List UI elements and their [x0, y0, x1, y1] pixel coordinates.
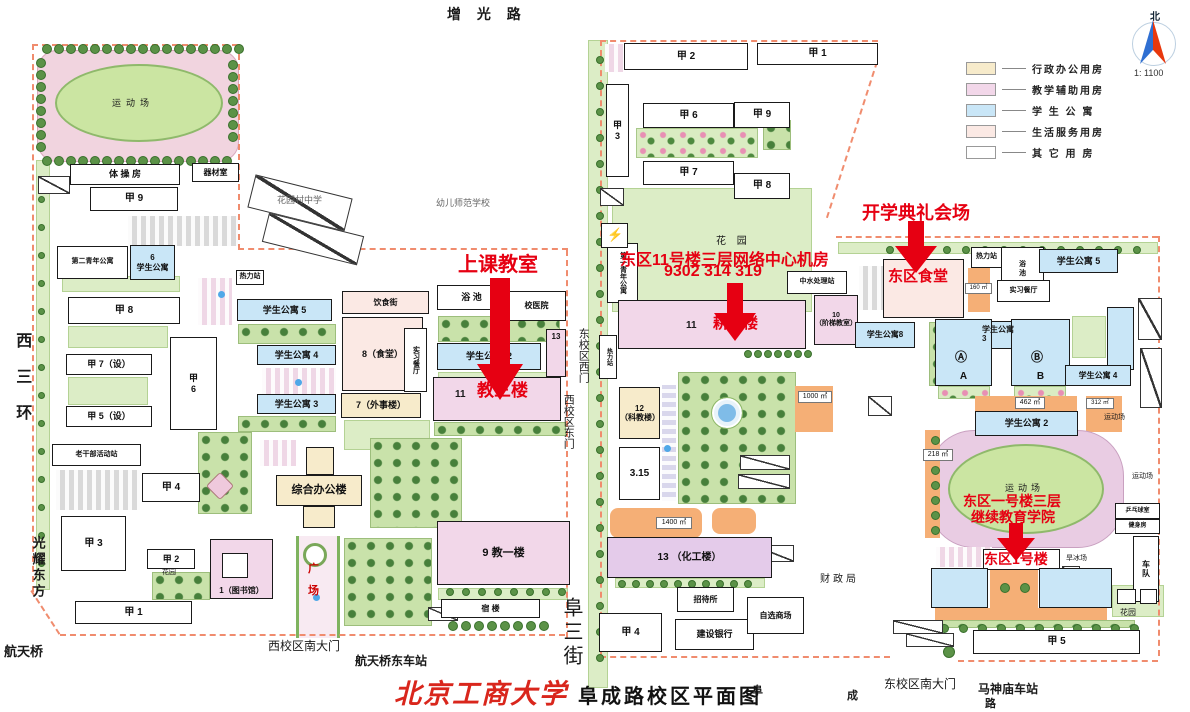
- building-label: 热力站: [976, 253, 997, 261]
- building-label: 甲 3: [84, 538, 102, 550]
- building-label: 13: [552, 332, 561, 341]
- building-building-3-15: 3.15: [619, 447, 660, 500]
- tree-icon: [618, 580, 626, 588]
- building-label: 1（图书馆）: [219, 586, 263, 595]
- campus-boundary: [600, 40, 878, 42]
- building-w-dorm-4: 学生公寓 4: [257, 345, 336, 365]
- tree-icon: [478, 588, 486, 596]
- e-court-small-1: 运动场: [1104, 414, 1125, 422]
- slash-box-icon: [906, 633, 954, 647]
- tree-icon: [38, 504, 45, 511]
- building-label: 10 （阶梯教室）: [815, 312, 857, 328]
- legend-line: [1002, 89, 1026, 90]
- tree-icon: [539, 621, 549, 631]
- arrow-head-icon: [895, 246, 937, 273]
- arrow-head-icon: [997, 538, 1035, 561]
- building-label: 实习餐厅: [411, 346, 419, 374]
- area-dots: [198, 432, 252, 514]
- legend-item: 生活服务用房: [966, 121, 1104, 142]
- building-label: 学生公寓 3: [275, 399, 319, 409]
- tree-icon: [1133, 246, 1141, 254]
- legend-swatch: [966, 146, 996, 159]
- building-label: 甲 2: [677, 51, 695, 63]
- building-label: 13 （化工楼）: [658, 552, 722, 564]
- building-w-dorm-5: 学生公寓 5: [237, 299, 332, 321]
- legend-line: [1002, 110, 1026, 111]
- building-label: 实习餐厅: [1010, 287, 1038, 295]
- building-w-jia-9: 甲 9: [90, 187, 178, 211]
- tree-icon: [38, 364, 45, 371]
- building-south-dorm-block: 宿 楼: [441, 599, 540, 618]
- annotation-network-center-line2: 9302 314 319: [664, 263, 762, 281]
- building-sci-edu-building-12: 12 （科教楼）: [619, 387, 660, 439]
- water-dot-icon: [664, 445, 671, 452]
- building-label: 甲 7（设）: [87, 359, 131, 369]
- kindergarten-school: 幼儿师范学校: [436, 198, 490, 209]
- tree-icon: [513, 621, 523, 631]
- tree-icon: [162, 44, 172, 54]
- tree-icon: [38, 224, 45, 231]
- area-dots: [238, 324, 336, 344]
- east-west-gate: 东校区西门: [576, 328, 589, 383]
- building-label: 学生公寓 5: [1057, 256, 1101, 266]
- campus-boundary: [32, 44, 34, 592]
- building-label: 甲 4: [162, 482, 180, 494]
- tree-icon: [198, 44, 208, 54]
- building-e-jia-8: 甲 8: [734, 173, 790, 199]
- tree-icon: [1020, 583, 1030, 593]
- building-label: 车 队: [1142, 560, 1150, 578]
- tree-icon: [446, 588, 454, 596]
- area-parkg: [859, 266, 883, 310]
- dorm-3a-badge: Ⓐ: [955, 350, 967, 364]
- building-label: 乒乓球室: [1125, 508, 1149, 515]
- building-w-practice-restaurant: 实习餐厅: [404, 328, 427, 392]
- legend-line: [1002, 68, 1026, 69]
- building-e-practice-restaurant: 实习餐厅: [997, 280, 1050, 302]
- slash-box-icon: [740, 455, 790, 470]
- tree-icon: [596, 290, 604, 298]
- tree-icon: [804, 350, 812, 358]
- building-label: 学生公寓 4: [275, 350, 319, 360]
- building-label: 器材室: [204, 168, 228, 177]
- building-admin-office-wing-n: [306, 447, 334, 475]
- tree-icon: [38, 476, 45, 483]
- tree-icon: [36, 82, 46, 92]
- building-label: 1400 ㎡: [662, 519, 687, 527]
- w-sports-field: 运动场: [112, 98, 154, 109]
- area-dots: [344, 538, 432, 626]
- tree-icon: [42, 44, 52, 54]
- tree-icon: [931, 496, 940, 505]
- tree-icon: [36, 142, 46, 152]
- building-label: 综合办公楼: [292, 484, 347, 497]
- building-label: 8（食堂）: [362, 349, 403, 359]
- legend-label: 其 它 用 房: [1032, 145, 1094, 160]
- tree-icon: [596, 654, 604, 662]
- legend-item: 教学辅助用房: [966, 79, 1104, 100]
- building-label: 招待所: [694, 595, 718, 604]
- teaching-3-number: 11: [455, 389, 466, 401]
- legend-line: [1002, 152, 1026, 153]
- tree-icon: [596, 212, 604, 220]
- tree-icon: [54, 44, 64, 54]
- map-title: 北京工商大学 阜成路校区平面图: [394, 672, 762, 711]
- building-e-jia-4: 甲 4: [599, 613, 662, 652]
- tree-icon: [228, 84, 238, 94]
- tree-icon: [596, 316, 604, 324]
- building-e-jia-3: 甲 3: [606, 84, 629, 177]
- campus-boundary: [60, 634, 565, 636]
- tree-icon: [42, 156, 52, 166]
- building-w-jia-8: 甲 8: [68, 297, 180, 324]
- tree-icon: [1000, 583, 1010, 593]
- building-label: 12 （科教楼）: [620, 404, 659, 422]
- tree-icon: [66, 44, 76, 54]
- arrow-to-east-building-1: [997, 523, 1035, 561]
- tree-icon: [744, 580, 752, 588]
- tree-icon: [943, 646, 955, 658]
- tree-icon: [36, 118, 46, 128]
- building-e-jia-1: 甲 1: [757, 43, 878, 65]
- legend-swatch: [966, 62, 996, 75]
- building-w-building-13: 13: [546, 329, 566, 377]
- tree-icon: [36, 94, 46, 104]
- tree-icon: [794, 350, 802, 358]
- tree-icon: [764, 350, 772, 358]
- tree-icon: [228, 108, 238, 118]
- tree-icon: [228, 132, 238, 142]
- arrow-shaft: [727, 283, 743, 313]
- tree-icon: [461, 621, 471, 631]
- tree-icon: [646, 580, 654, 588]
- area-parkp: [198, 278, 232, 325]
- campus-title: 阜成路校区平面图: [578, 680, 762, 709]
- road-fuchenglu-2: 成: [847, 690, 858, 703]
- road-hangtianqiao: 航天桥: [4, 644, 43, 660]
- annotation-continuing-edu-line2: 继续教育学院: [971, 507, 1055, 527]
- building-garden-box-2: [1140, 589, 1157, 604]
- building-e-dorm-4: 学生公寓 4: [1065, 365, 1131, 386]
- area-orange: [990, 570, 1038, 608]
- building-gengyun-building: [618, 300, 806, 349]
- w-garden-small: 花园: [162, 569, 176, 577]
- tree-icon: [174, 44, 184, 54]
- building-east-building-1-east-wing: [1039, 568, 1112, 608]
- building-garden-box-1: [1117, 589, 1136, 604]
- tree-icon: [500, 621, 510, 631]
- building-e-jia-5: 甲 5: [973, 630, 1140, 654]
- tree-icon: [38, 420, 45, 427]
- building-construction-bank: 建设银行: [675, 619, 754, 650]
- tree-icon: [931, 436, 940, 445]
- tree-icon: [596, 108, 604, 116]
- tree-icon: [228, 72, 238, 82]
- building-label: 218 ㎡: [928, 451, 949, 459]
- building-lecture-building-10: 10 （阶梯教室）: [814, 295, 858, 345]
- building-label: 甲 8: [115, 305, 133, 317]
- tree-icon: [228, 96, 238, 106]
- tree-icon: [596, 498, 604, 506]
- tree-icon: [38, 196, 45, 203]
- building-w-jia-3: 甲 3: [61, 516, 126, 571]
- building-food-street: 饮食街: [342, 291, 429, 314]
- building-label: 甲 3: [613, 120, 622, 141]
- tree-icon: [596, 524, 604, 532]
- tree-icon: [36, 70, 46, 80]
- tree-icon: [494, 588, 502, 596]
- university-name: 北京工商大学: [394, 672, 568, 711]
- building-label: 甲 1: [808, 48, 826, 60]
- building-label: 6 学生公寓: [137, 253, 169, 271]
- area-dots: [238, 416, 336, 432]
- road-fusanjie: 阜三街: [559, 597, 583, 669]
- tree-icon: [931, 526, 940, 535]
- building-label: 第二青年公寓: [72, 258, 114, 266]
- compass-needle-icon: [1140, 20, 1166, 64]
- tree-icon: [78, 44, 88, 54]
- building-label: 7（外事楼）: [356, 400, 406, 410]
- building-second-youth-apartment: 第二青年公寓: [57, 246, 128, 279]
- building-label: 甲 7: [679, 167, 697, 179]
- tree-icon: [886, 246, 894, 254]
- tree-icon: [38, 252, 45, 259]
- area-lawn: [68, 326, 168, 348]
- tree-icon: [596, 472, 604, 480]
- building-e-heating-station: 热力站: [971, 247, 1002, 268]
- building-w-jia-7: 甲 7（设）: [66, 354, 152, 375]
- tree-icon: [36, 58, 46, 68]
- tree-icon: [210, 44, 220, 54]
- building-w-jia-1: 甲 1: [75, 601, 192, 624]
- legend-item: 其 它 用 房: [966, 142, 1104, 163]
- tree-icon: [660, 580, 668, 588]
- slash-box-icon: [600, 188, 624, 206]
- arrow-to-gengyun: [714, 283, 756, 341]
- tree-icon: [784, 350, 792, 358]
- building-label: 甲 2: [163, 554, 180, 564]
- tree-icon: [596, 602, 604, 610]
- building-w-dorm-6: 6 学生公寓: [130, 245, 175, 280]
- area-tag-160: 160 ㎡: [965, 283, 992, 294]
- tree-icon: [754, 350, 762, 358]
- building-label: 健身房: [1128, 523, 1146, 530]
- building-label: 甲 9: [753, 109, 771, 121]
- building-w-jia-2: 甲 2: [147, 549, 195, 569]
- e-dorm-3-label: 学生公寓 3: [982, 326, 1014, 344]
- area-tag-1400: 1400 ㎡: [656, 517, 692, 529]
- tree-icon: [126, 44, 136, 54]
- plaza-label: 广 场: [308, 558, 319, 602]
- tree-icon: [234, 44, 244, 54]
- area-lawn: [68, 377, 148, 405]
- area-dots: [370, 438, 462, 528]
- tree-icon: [542, 588, 550, 596]
- tree-icon: [510, 588, 518, 596]
- legend-label: 行政办公用房: [1032, 61, 1104, 76]
- building-e-dorm-5: 学生公寓 5: [1039, 249, 1118, 273]
- tree-icon: [38, 336, 45, 343]
- tree-icon: [962, 246, 970, 254]
- building-table-tennis-room: 乒乓球室: [1115, 503, 1160, 519]
- area-orange: [935, 608, 1107, 620]
- building-e-dorm-8: 学生公寓8: [855, 322, 915, 348]
- tree-icon: [931, 466, 940, 475]
- building-w-jia-4: 甲 4: [142, 473, 200, 502]
- building-label: 学生公寓 4: [1079, 371, 1118, 380]
- building-fitness-room: 健身房: [1115, 519, 1160, 534]
- compass: 北 1: 1100: [1128, 8, 1188, 84]
- area-parkg: [56, 470, 140, 510]
- e-garden-small: 花园: [1120, 608, 1136, 618]
- skating-rink: 旱冰场: [1066, 555, 1087, 563]
- tree-icon: [448, 621, 458, 631]
- west-south-gate: 西校区南大门: [268, 639, 340, 653]
- building-library-core: [222, 553, 248, 578]
- gengyun-number: 11: [686, 320, 697, 332]
- water-dot-icon: [295, 379, 302, 386]
- road-zengguang: 增 光 路: [447, 6, 527, 23]
- building-e-jia-2: 甲 2: [624, 43, 748, 70]
- slash-box-icon: [38, 176, 70, 194]
- building-teaching-building-1: 9 教一楼: [437, 521, 570, 585]
- tree-icon: [38, 308, 45, 315]
- tree-icon: [774, 350, 782, 358]
- area-tag-312: 312 ㎡: [1086, 398, 1114, 409]
- legend-label: 教学辅助用房: [1032, 82, 1104, 97]
- tree-icon: [596, 394, 604, 402]
- west-east-gate: 西校区东门: [561, 394, 574, 449]
- building-gym-room: 体 操 房: [70, 164, 180, 185]
- building-label: B: [1037, 371, 1044, 383]
- building-w-jia-5: 甲 5（设）: [66, 406, 152, 427]
- area-tag-1000: 1000 ㎡: [798, 391, 832, 403]
- building-water-treatment-station: 中水处理站: [787, 271, 847, 294]
- tree-icon: [102, 44, 112, 54]
- area-tag-462: 462 ㎡: [1015, 397, 1045, 409]
- finance-bureau: 财政局: [820, 574, 859, 586]
- map-scale: 1: 1100: [1134, 68, 1163, 78]
- tree-icon: [596, 550, 604, 558]
- arrow-to-east-canteen: [895, 221, 937, 273]
- campus-boundary: [826, 61, 878, 218]
- lightning-icon: ⚡: [607, 227, 623, 243]
- water-dot-icon: [218, 291, 225, 298]
- annotation-ceremony: 开学典礼会场: [862, 199, 970, 225]
- legend-line: [1002, 131, 1026, 132]
- building-foreign-affairs-building-7: 7（外事楼）: [341, 393, 421, 418]
- tree-icon: [90, 44, 100, 54]
- road-guangyao-dongfang: 光耀东方: [30, 536, 46, 600]
- area-lawn: [1072, 316, 1106, 358]
- building-label: 学生公寓 5: [263, 305, 307, 315]
- tree-icon: [138, 44, 148, 54]
- building-label: 浴 池: [1019, 261, 1026, 277]
- legend-swatch: [966, 125, 996, 138]
- building-label: 宿 楼: [481, 604, 499, 613]
- building-label: 甲 6: [189, 373, 198, 394]
- campus-boundary: [600, 656, 890, 658]
- tree-icon: [596, 160, 604, 168]
- building-label: 建设银行: [696, 629, 732, 639]
- arrow-head-icon: [477, 364, 523, 400]
- tree-icon: [114, 44, 124, 54]
- tree-icon: [36, 106, 46, 116]
- tree-icon: [943, 246, 951, 254]
- tree-icon: [487, 621, 497, 631]
- slash-box-icon: [893, 620, 943, 634]
- legend-item: 学 生 公 寓: [966, 100, 1104, 121]
- campus-map: 行政办公用房教学辅助用房学 生 公 寓生活服务用房其 它 用 房 北 1: 11…: [0, 0, 1190, 712]
- building-w-dorm-3: 学生公寓 3: [257, 394, 336, 414]
- area-orange: [712, 508, 756, 534]
- tree-icon: [596, 420, 604, 428]
- building-admin-office-wing-s: [303, 506, 335, 528]
- area-lav: [662, 385, 676, 501]
- campus-boundary: [836, 236, 1158, 238]
- area-dots: [152, 572, 210, 600]
- tree-icon: [38, 280, 45, 287]
- legend-swatch: [966, 83, 996, 96]
- legend-label: 生活服务用房: [1032, 124, 1104, 139]
- building-label: 学生公寓8: [867, 330, 903, 339]
- tree-icon: [38, 448, 45, 455]
- tree-icon: [931, 511, 940, 520]
- building-label: 甲 1: [124, 607, 142, 619]
- building-label: 甲 6: [679, 110, 697, 122]
- campus-boundary: [958, 660, 1158, 662]
- tree-icon: [38, 392, 45, 399]
- tree-icon: [959, 624, 968, 633]
- building-label: 甲 9: [125, 193, 143, 205]
- area-tag-218: 218 ㎡: [923, 449, 953, 461]
- building-e-dorm-2: 学生公寓 2: [975, 411, 1078, 436]
- tree-icon: [931, 481, 940, 490]
- campus-boundary: [238, 44, 240, 250]
- building-label: 9 教一楼: [482, 547, 524, 560]
- building-guesthouse: 招待所: [677, 587, 734, 612]
- building-label: 1000 ㎡: [803, 393, 828, 401]
- building-label: 中水处理站: [800, 278, 835, 286]
- building-label: 甲 8: [753, 180, 771, 192]
- arrow-head-icon: [714, 313, 756, 341]
- huayuancun-school: 花园村中学: [277, 195, 322, 206]
- building-admin-office-building: 综合办公楼: [276, 475, 362, 506]
- building-label: 312 ㎡: [1091, 400, 1109, 407]
- legend-swatch: [966, 104, 996, 117]
- tree-icon: [222, 44, 232, 54]
- legend-item: 行政办公用房: [966, 58, 1104, 79]
- building-label: 甲 5: [1047, 636, 1065, 648]
- tree-icon: [54, 156, 64, 166]
- building-label: 160 ㎡: [970, 285, 988, 292]
- slash-box-icon: [1140, 348, 1162, 408]
- building-label: 体 操 房: [109, 169, 141, 179]
- building-e-jia-9: 甲 9: [734, 102, 790, 128]
- arrow-to-teaching-3: [477, 278, 523, 400]
- building-label: A: [960, 371, 967, 383]
- building-veteran-cadre-station: 老干部活动站: [52, 444, 141, 466]
- building-label: 3.15: [630, 468, 649, 480]
- e-court-small-2: 运动场: [1132, 473, 1153, 481]
- area-water: [718, 404, 736, 422]
- tree-icon: [744, 350, 752, 358]
- legend: 行政办公用房教学辅助用房学 生 公 寓生活服务用房其 它 用 房: [966, 58, 1104, 163]
- building-label: 热力站: [240, 273, 261, 281]
- tree-icon: [558, 588, 566, 596]
- tree-icon: [596, 264, 604, 272]
- road-fuchenglu-3: 路: [985, 698, 996, 711]
